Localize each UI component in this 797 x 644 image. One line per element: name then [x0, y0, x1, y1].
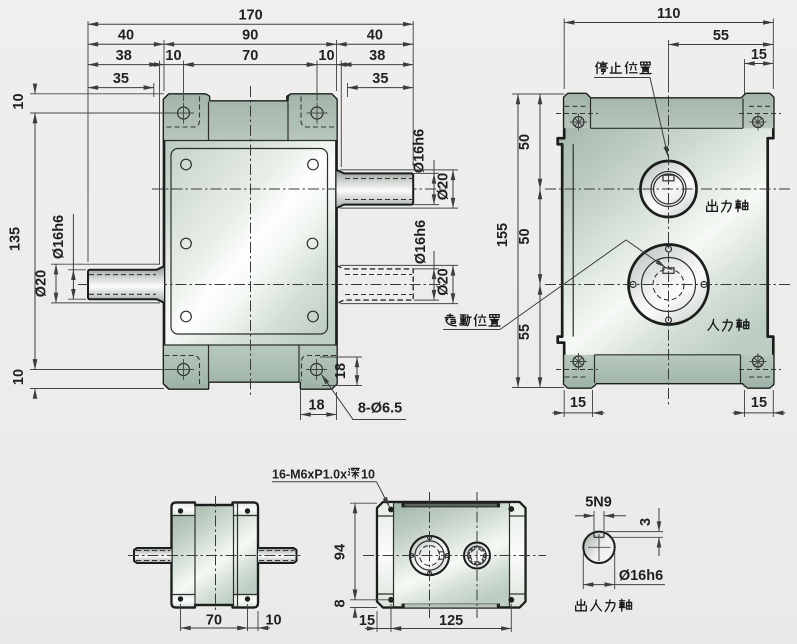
- svg-text:170: 170: [238, 8, 262, 24]
- svg-text:10: 10: [318, 48, 334, 64]
- svg-text:3: 3: [638, 518, 654, 526]
- svg-text:10: 10: [265, 613, 281, 629]
- svg-text:55: 55: [713, 28, 729, 44]
- svg-text:Ø16h6: Ø16h6: [413, 220, 429, 264]
- svg-text:18: 18: [308, 398, 324, 414]
- svg-text:40: 40: [118, 28, 134, 44]
- svg-text:Ø20: Ø20: [436, 173, 452, 200]
- svg-text:35: 35: [113, 71, 129, 87]
- svg-text:110: 110: [657, 6, 680, 22]
- svg-text:135: 135: [8, 227, 24, 251]
- svg-text:38: 38: [116, 48, 132, 64]
- svg-text:Ø16h6: Ø16h6: [619, 568, 663, 584]
- svg-text:155: 155: [495, 223, 511, 247]
- svg-text:15: 15: [359, 613, 375, 629]
- svg-text:Ø16h6: Ø16h6: [412, 129, 428, 173]
- svg-text:15: 15: [751, 395, 767, 411]
- svg-text:50: 50: [517, 134, 533, 150]
- svg-text:35: 35: [372, 71, 388, 87]
- svg-text:8: 8: [333, 599, 349, 607]
- svg-text:50: 50: [517, 228, 533, 244]
- svg-text:70: 70: [242, 48, 258, 64]
- svg-text:70: 70: [206, 613, 222, 629]
- svg-text:40: 40: [367, 28, 383, 44]
- svg-text:8-Ø6.5: 8-Ø6.5: [358, 401, 402, 417]
- svg-text:125: 125: [439, 613, 463, 629]
- svg-text:Ø16h6: Ø16h6: [51, 215, 67, 259]
- svg-text:Ø20: Ø20: [436, 268, 452, 295]
- svg-text:10: 10: [361, 468, 375, 482]
- svg-text:5N9: 5N9: [585, 495, 612, 511]
- svg-text:10: 10: [11, 369, 27, 385]
- svg-text:38: 38: [369, 48, 385, 64]
- svg-text:16-M6xP1.0x: 16-M6xP1.0x: [272, 468, 347, 482]
- svg-text:55: 55: [517, 324, 533, 340]
- svg-text:94: 94: [333, 544, 349, 560]
- svg-text:15: 15: [570, 395, 586, 411]
- svg-text:10: 10: [11, 93, 27, 109]
- svg-text:10: 10: [165, 48, 181, 64]
- svg-text:90: 90: [242, 28, 258, 44]
- svg-text:18: 18: [333, 363, 349, 379]
- svg-text:Ø20: Ø20: [34, 270, 50, 297]
- svg-text:15: 15: [751, 47, 767, 63]
